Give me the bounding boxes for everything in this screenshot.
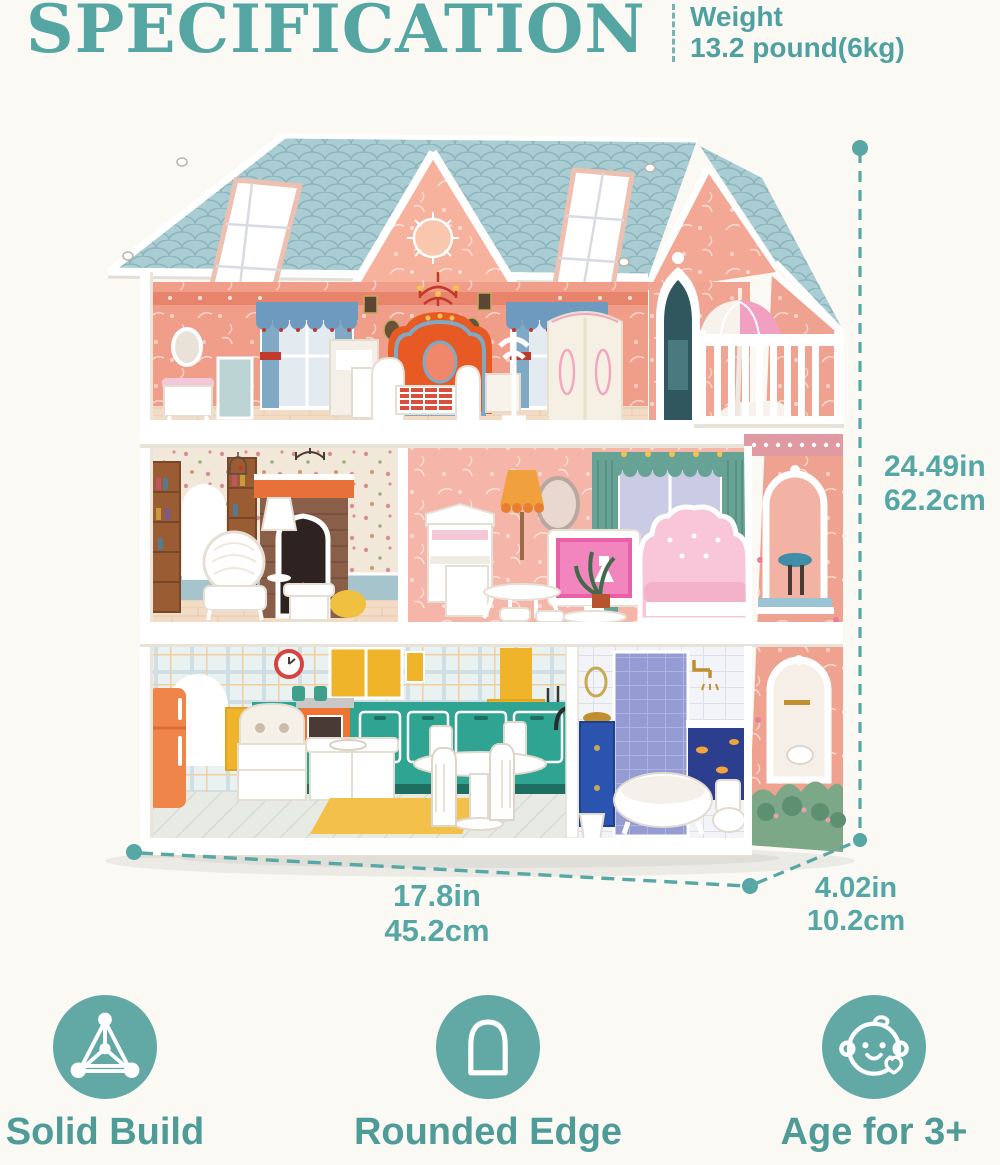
width-dimension-label: 17.8in 45.2cm	[384, 878, 489, 948]
feature-circle	[436, 995, 540, 1099]
tetrahedron-icon	[62, 1004, 148, 1090]
wardrobe	[548, 312, 622, 424]
bookcase-left	[152, 462, 180, 612]
arch-icon	[445, 1004, 531, 1090]
specification-page: SPECIFICATION Weight 13.2 pound(6kg)	[0, 0, 1000, 1165]
fridge	[148, 688, 186, 808]
white-hutch	[238, 704, 306, 800]
oval-mirror	[538, 478, 578, 530]
kitchen	[148, 646, 580, 838]
painted-dresser	[218, 358, 252, 418]
room-divider	[398, 446, 408, 622]
feature-rounded-edge: Rounded Edge	[338, 995, 638, 1152]
wall-clock	[276, 651, 302, 677]
bath-vanity	[580, 712, 614, 826]
bedroom	[152, 272, 648, 424]
piano	[426, 504, 494, 616]
side-table	[284, 584, 334, 620]
bathtub	[614, 773, 712, 834]
feature-circle	[822, 995, 926, 1099]
bucket	[580, 814, 604, 840]
bathroom	[566, 646, 745, 840]
pink-sofa	[640, 507, 748, 620]
feature-circle	[53, 995, 157, 1099]
living-room	[152, 446, 750, 623]
height-dimension-label: 24.49in 62.2cm	[884, 450, 986, 518]
feature-label: Rounded Edge	[338, 1112, 638, 1152]
width-value-inches: 17.8in	[384, 878, 489, 913]
depth-dimension-label: 4.02in 10.2cm	[807, 872, 905, 938]
height-value-inches: 24.49in	[884, 450, 986, 484]
feature-age: Age for 3+	[724, 995, 1000, 1152]
depth-value-cm: 10.2cm	[807, 905, 905, 938]
balcony-fascia	[744, 434, 843, 456]
toilet	[713, 780, 745, 832]
feature-solid-build: Solid Build	[0, 995, 255, 1152]
height-value-cm: 62.2cm	[884, 484, 986, 518]
sink-counter	[306, 738, 398, 800]
baby-face-icon	[831, 1004, 917, 1090]
beanbag	[330, 590, 366, 618]
width-value-cm: 45.2cm	[384, 913, 489, 948]
wicker-chair	[204, 532, 266, 620]
depth-value-inches: 4.02in	[807, 872, 905, 905]
height-dimension-line	[852, 140, 868, 847]
feature-label: Age for 3+	[724, 1112, 1000, 1152]
feature-label: Solid Build	[0, 1112, 255, 1152]
dollhouse-illustration	[0, 0, 1000, 1165]
